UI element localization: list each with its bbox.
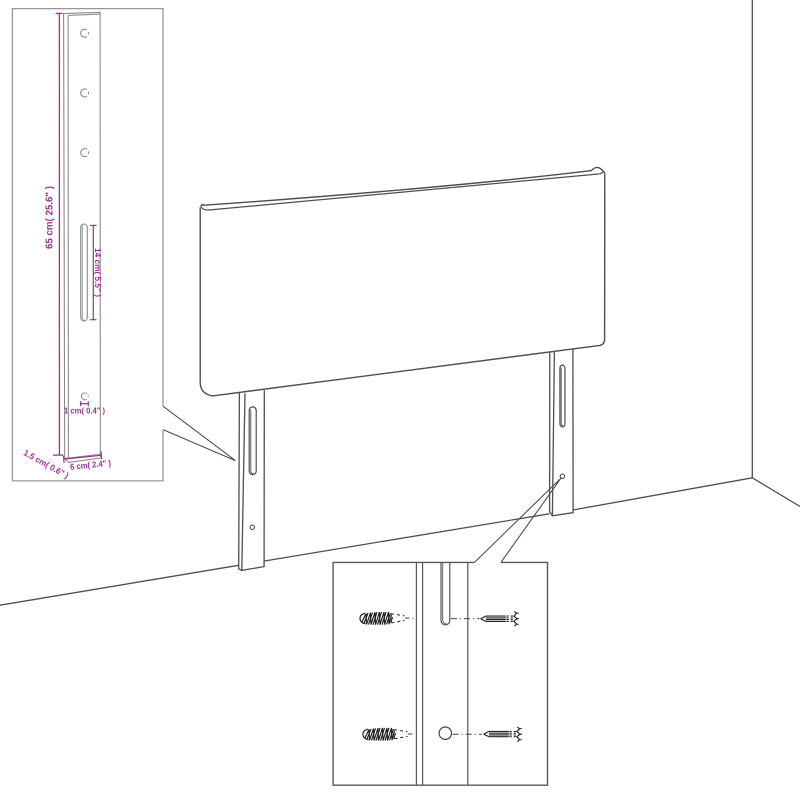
svg-text:65 cm( 25.6" ): 65 cm( 25.6" ) <box>45 186 56 249</box>
svg-text:14 cm( 5.5" ): 14 cm( 5.5" ) <box>93 248 103 297</box>
svg-text:1 cm( 0.4" ): 1 cm( 0.4" ) <box>64 405 105 415</box>
